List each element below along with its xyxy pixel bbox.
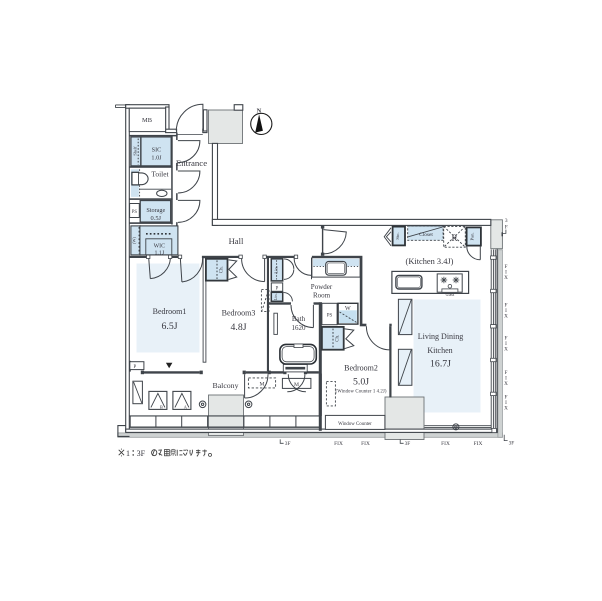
- svg-text:Storage: Storage: [146, 207, 165, 214]
- svg-text:F: F: [505, 224, 508, 230]
- svg-text:Ch.: Ch.: [220, 266, 225, 273]
- svg-text:3F: 3F: [285, 441, 291, 447]
- svg-text:R: R: [451, 233, 457, 243]
- svg-text:Hall: Hall: [229, 236, 244, 246]
- svg-text:Living Dining: Living Dining: [418, 332, 464, 341]
- svg-text:M: M: [260, 381, 265, 387]
- svg-text:X: X: [504, 314, 508, 320]
- svg-text:X: X: [504, 275, 508, 281]
- svg-text:3F: 3F: [405, 441, 411, 447]
- svg-text:Shelf: Shelf: [133, 146, 138, 156]
- svg-text:Lin.: Lin.: [274, 266, 279, 274]
- svg-text:Kitchen: Kitchen: [427, 346, 452, 355]
- svg-text:Toilet: Toilet: [151, 170, 169, 179]
- svg-text:Bath: Bath: [292, 315, 306, 323]
- svg-text:Pan.: Pan.: [470, 232, 475, 240]
- svg-text:Glass: Glass: [446, 293, 455, 297]
- svg-text:16.7J: 16.7J: [430, 359, 451, 370]
- svg-text:Bedroom1: Bedroom1: [153, 307, 187, 316]
- svg-text:Closet: Closet: [419, 232, 433, 238]
- svg-text:FIX: FIX: [334, 441, 343, 447]
- svg-text:P: P: [276, 286, 279, 291]
- svg-text:X: X: [504, 347, 508, 353]
- svg-text:X: X: [504, 406, 508, 412]
- svg-text:1.0J: 1.0J: [151, 154, 162, 161]
- svg-text:0.5J: 0.5J: [151, 215, 162, 222]
- svg-text:PS: PS: [132, 210, 138, 215]
- svg-text:Sto.: Sto.: [395, 232, 400, 239]
- svg-text:PS: PS: [327, 314, 333, 319]
- svg-text:Ch.: Ch.: [336, 335, 341, 342]
- svg-text:1620: 1620: [292, 324, 307, 332]
- svg-text:M: M: [294, 382, 299, 388]
- svg-text:3: 3: [505, 218, 508, 224]
- svg-text:WIC: WIC: [154, 244, 166, 250]
- svg-text:(W): (W): [132, 236, 137, 244]
- svg-text:3F: 3F: [509, 441, 515, 447]
- svg-text:3F: 3F: [137, 449, 146, 458]
- svg-text:Entrance: Entrance: [176, 158, 207, 168]
- svg-text:Bedroom3: Bedroom3: [222, 309, 256, 318]
- svg-text:Window Counter: Window Counter: [338, 422, 372, 427]
- svg-text:(Window Counter 1 4.2J): (Window Counter 1 4.2J): [336, 390, 387, 395]
- svg-text:MB: MB: [142, 117, 152, 124]
- svg-text:Room: Room: [313, 292, 331, 300]
- svg-text:B: B: [160, 404, 163, 409]
- svg-text:Powder: Powder: [311, 283, 333, 291]
- svg-text:X: X: [504, 381, 508, 387]
- svg-text:P: P: [133, 365, 136, 370]
- svg-text:6.5J: 6.5J: [161, 321, 177, 332]
- svg-text:(Kitchen 3.4J): (Kitchen 3.4J): [406, 257, 454, 266]
- svg-text:Lin.: Lin.: [273, 293, 278, 300]
- svg-text:Balcony: Balcony: [213, 381, 239, 390]
- svg-text:FIX: FIX: [441, 441, 450, 447]
- svg-text:N: N: [257, 108, 262, 115]
- svg-text:FIX: FIX: [474, 441, 483, 447]
- svg-text:W: W: [345, 305, 351, 312]
- svg-text:SIC: SIC: [152, 146, 162, 153]
- svg-text:1: 1: [126, 449, 130, 458]
- svg-text:1.1J: 1.1J: [154, 251, 164, 257]
- svg-text:4.8J: 4.8J: [230, 322, 246, 333]
- svg-text:FIX: FIX: [361, 441, 370, 447]
- svg-text:Bedroom2: Bedroom2: [344, 364, 378, 373]
- svg-text:5.0J: 5.0J: [353, 377, 369, 388]
